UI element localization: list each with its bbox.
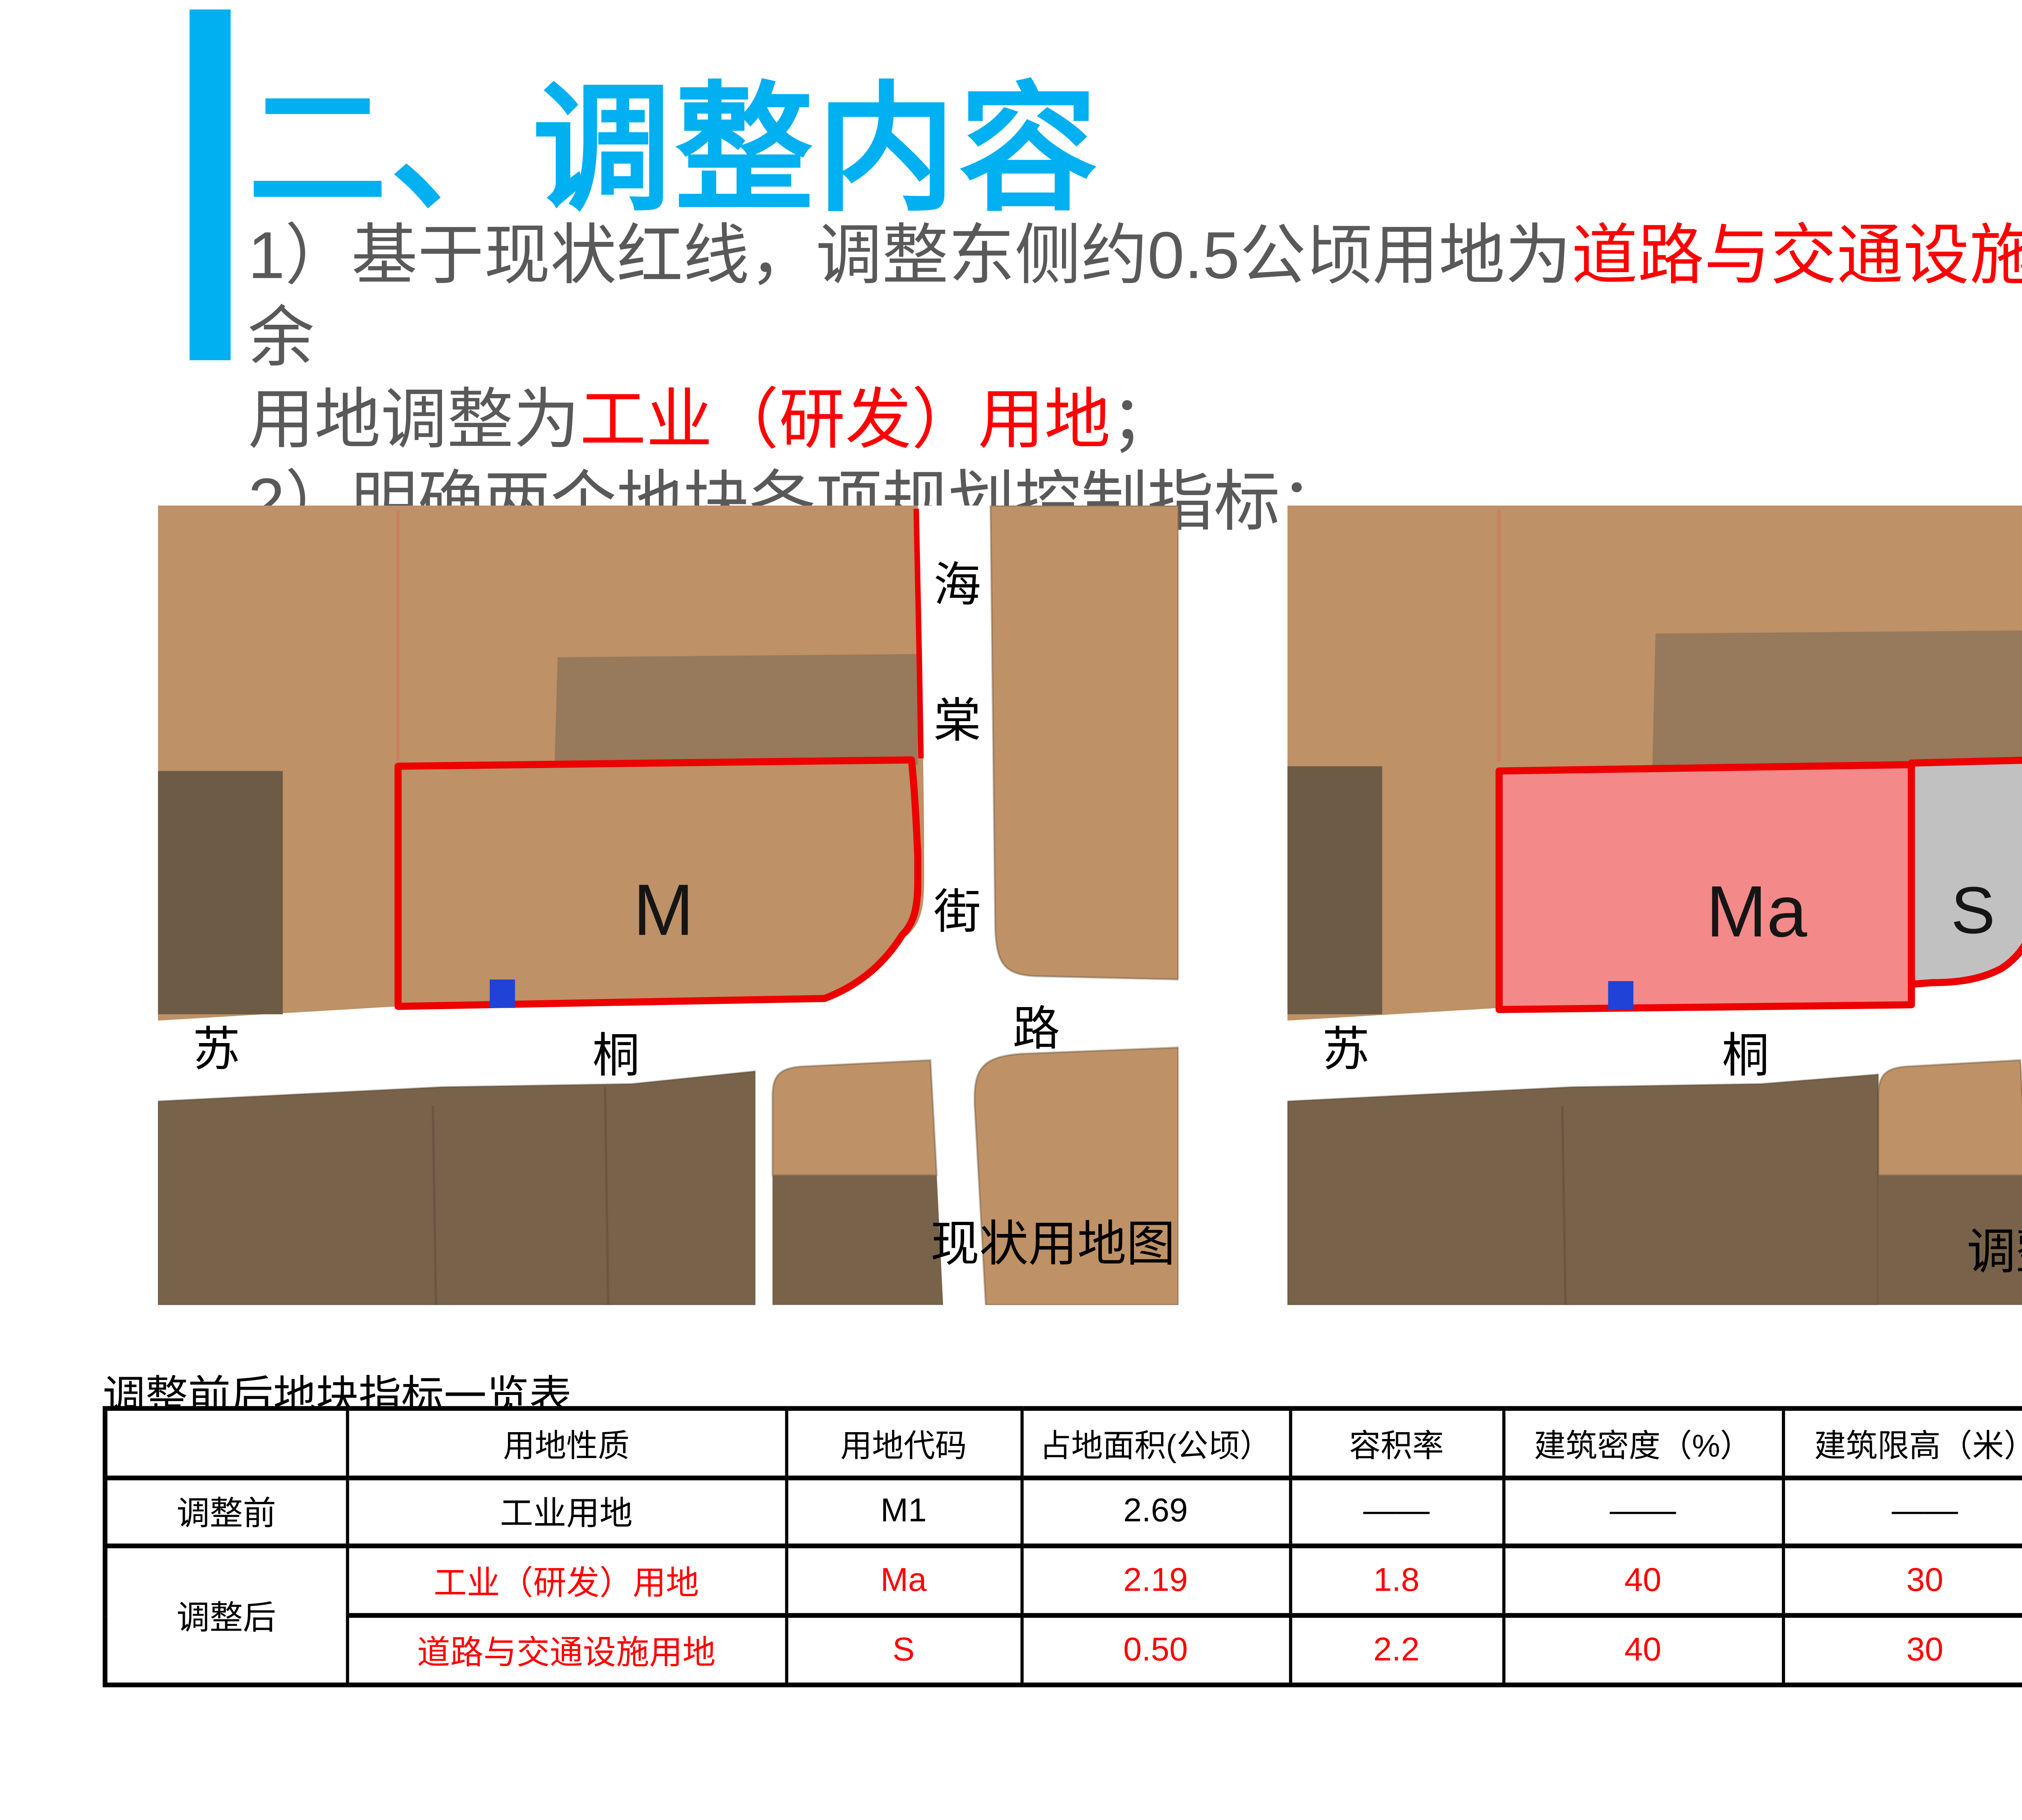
cell-after2-density: 40 xyxy=(1503,1615,1783,1685)
parcel-S-gray xyxy=(1912,760,2022,984)
parcel-mid-brown-north xyxy=(554,654,918,769)
header-blank xyxy=(105,1408,347,1478)
cell-after2-code: S xyxy=(786,1615,1021,1685)
road-label-lu: 路 xyxy=(1013,1002,1060,1055)
parcel-M-label: M xyxy=(633,870,694,951)
map-after: 海 棠 街 苏 桐 路 Ma S 调整后用地图 xyxy=(1288,506,2022,1305)
cell-before-far: —— xyxy=(1290,1478,1503,1546)
cell-after1-code: Ma xyxy=(786,1546,1021,1615)
road-label-jie: 街 xyxy=(934,885,981,938)
body-text: 1）基于现状红线，调整东侧约0.5公顷用地为道路与交通设施用地，其余 用地调整为… xyxy=(248,215,2022,544)
blue-utility-square xyxy=(1608,981,1634,1009)
body-line1-gray: 1）基于现状红线，调整东侧约0.5公顷用地为 xyxy=(248,218,1571,292)
page-title: 二、调整内容 xyxy=(248,38,1101,239)
body-line2-gray: 用地调整为 xyxy=(248,382,580,457)
cell-after2-landuse: 道路与交通设施用地 xyxy=(347,1615,786,1685)
cell-after1-area: 2.19 xyxy=(1021,1546,1290,1615)
blue-utility-square xyxy=(490,980,515,1008)
body-line2-tail: ； xyxy=(1110,382,1177,457)
cell-before-density: —— xyxy=(1503,1478,1783,1546)
parcel-dark-south-mid xyxy=(772,1175,943,1305)
body-line2-red: 工业（研发）用地 xyxy=(580,382,1111,457)
cell-after1-density: 40 xyxy=(1503,1546,1783,1615)
cell-after2-height: 30 xyxy=(1783,1615,2022,1685)
map-before-caption: 现状用地图 xyxy=(931,1216,1175,1271)
road-label-tong: 桐 xyxy=(1722,1029,1769,1082)
table-row: 道路与交通设施用地 S 0.50 2.2 40 30 15 xyxy=(105,1615,2022,1685)
parcel-tan-south-mid xyxy=(772,1060,937,1175)
header-area: 占地面积(公顷） xyxy=(1021,1408,1290,1478)
road-label-su: 苏 xyxy=(1322,1022,1370,1075)
slide: 二、调整内容 1）基于现状红线，调整东侧约0.5公顷用地为道路与交通设施用地，其… xyxy=(0,0,2022,1820)
cell-after1-far: 1.8 xyxy=(1290,1546,1503,1615)
header-land-code: 用地代码 xyxy=(786,1408,1021,1478)
header-density: 建筑密度（%） xyxy=(1503,1408,1783,1478)
road-label-tong: 桐 xyxy=(592,1029,640,1082)
cell-before-height: —— xyxy=(1783,1478,2022,1546)
parcel-dark-west xyxy=(158,771,283,1014)
cell-before-landuse: 工业用地 xyxy=(347,1478,786,1546)
cell-after2-far: 2.2 xyxy=(1290,1615,1503,1685)
parcel-S-label: S xyxy=(1951,873,1995,947)
cell-after1-landuse: 工业（研发）用地 xyxy=(347,1546,786,1615)
map-after-caption: 调整后用地图 xyxy=(1967,1224,2022,1279)
parcel-mid-brown-north xyxy=(1652,631,2022,768)
header-land-use: 用地性质 xyxy=(347,1408,786,1478)
road-label-su: 苏 xyxy=(193,1022,240,1075)
body-line-1: 1）基于现状红线，调整东侧约0.5公顷用地为道路与交通设施用地，其余 xyxy=(248,215,2022,379)
parcel-Ma-pink xyxy=(1499,765,1912,1009)
table-row: 调整后 工业（研发）用地 Ma 2.19 1.8 40 30 30 xyxy=(105,1546,2022,1615)
cell-after2-area: 0.50 xyxy=(1021,1615,1290,1685)
cell-before-code: M1 xyxy=(786,1478,1021,1546)
body-line1-red: 道路与交通设施用地 xyxy=(1571,218,2022,292)
cell-after1-height: 30 xyxy=(1783,1546,2022,1615)
table-header-row: 用地性质 用地代码 占地面积(公顷） 容积率 建筑密度（%） 建筑限高（米） 绿… xyxy=(105,1408,2022,1478)
land-east-of-street xyxy=(990,506,1178,980)
indicator-table: 用地性质 用地代码 占地面积(公顷） 容积率 建筑密度（%） 建筑限高（米） 绿… xyxy=(103,1406,2022,1687)
parcel-Ma-label: Ma xyxy=(1706,871,1807,952)
parcel-dark-south xyxy=(1288,1074,1878,1305)
header-far: 容积率 xyxy=(1290,1408,1503,1478)
group-after: 调整后 xyxy=(105,1546,347,1685)
body-line-2: 用地调整为工业（研发）用地； xyxy=(248,379,2022,461)
table-row: 调整前 工业用地 M1 2.69 —— —— —— —— xyxy=(105,1478,2022,1546)
road-label-tang: 棠 xyxy=(934,694,981,747)
road-label-hai: 海 xyxy=(934,558,981,611)
accent-bar xyxy=(190,9,231,360)
cell-before-area: 2.69 xyxy=(1021,1478,1290,1546)
header-height-limit: 建筑限高（米） xyxy=(1783,1408,2022,1478)
map-before: 海 棠 街 苏 桐 路 M 现状用地图 xyxy=(158,506,1178,1305)
parcel-tan-south-mid xyxy=(1878,1060,2022,1175)
parcel-dark-west xyxy=(1288,766,1382,1014)
parcel-dark-south xyxy=(158,1071,755,1305)
group-before: 调整前 xyxy=(105,1478,347,1546)
